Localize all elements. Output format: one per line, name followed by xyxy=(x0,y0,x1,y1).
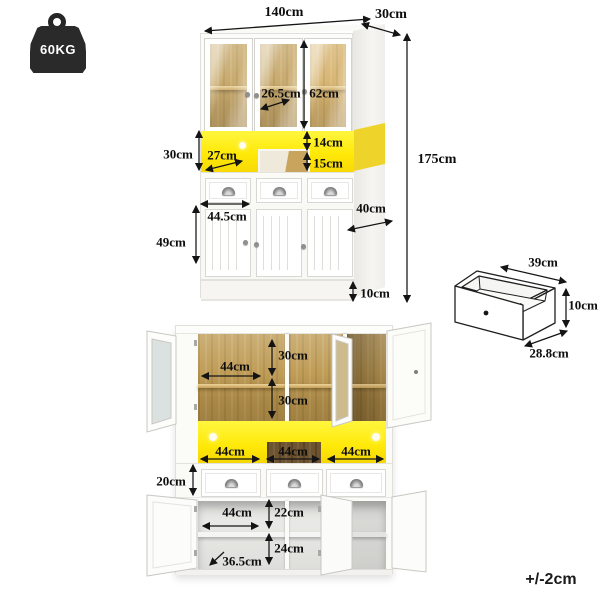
drawer-front xyxy=(326,469,386,497)
dim-glass-inner-depth: 26.5cm xyxy=(261,87,300,100)
door-knob xyxy=(245,92,250,97)
door-knob xyxy=(302,89,307,94)
drawer-front-panel xyxy=(455,286,523,340)
door-knob xyxy=(301,244,306,249)
drawer-side-panel xyxy=(523,288,555,340)
dim-upper-shelf: 30cm xyxy=(278,349,308,362)
door-knob xyxy=(254,242,259,247)
led-puck-light xyxy=(239,142,246,149)
shelf-edge xyxy=(198,384,285,388)
dim-bottom-upper: 22cm xyxy=(274,506,304,519)
drawer-top-rim xyxy=(455,271,555,305)
dim-led-comp-2: 44cm xyxy=(278,445,308,458)
dim-top-depth: 30cm xyxy=(375,8,407,22)
dim-glass-height: 62cm xyxy=(309,87,339,100)
dim-led-comp-3: 44cm xyxy=(341,445,371,458)
dim-bottom-lower: 24cm xyxy=(274,542,304,555)
shell-handle xyxy=(350,479,363,487)
dim-base-depth: 40cm xyxy=(356,202,386,215)
dim-inner-width: 44.5cm xyxy=(207,210,246,223)
beadboard-pattern xyxy=(212,216,244,270)
shell-handle xyxy=(273,187,286,195)
shelf-edge xyxy=(347,384,386,388)
drawer-bottom xyxy=(464,289,545,313)
dim-overall-height: 175cm xyxy=(418,153,457,167)
shell-handle xyxy=(225,479,238,487)
shadow-overlay xyxy=(347,501,386,569)
beadboard-pattern xyxy=(263,216,295,270)
shell-handle xyxy=(288,479,301,487)
dim-drawer-width: 39cm xyxy=(528,256,558,269)
glass-pane xyxy=(210,44,247,127)
kickboard xyxy=(176,569,392,575)
kickboard xyxy=(201,279,354,301)
dim-led-comp-1: 44cm xyxy=(215,445,245,458)
dim-kickboard: 10cm xyxy=(360,287,390,300)
dim-lower-shelf: 30cm xyxy=(278,394,308,407)
drawer-front xyxy=(256,178,302,203)
shelf-edge xyxy=(289,384,343,388)
compartment-left xyxy=(198,334,285,421)
dim-led-width: 27cm xyxy=(207,149,237,162)
drawer-front xyxy=(266,469,323,497)
dim-strip-height: 14cm xyxy=(313,136,343,149)
drawer-row xyxy=(176,463,392,498)
drawer-knob xyxy=(484,311,489,316)
compartment-right xyxy=(347,334,386,421)
drawer-front xyxy=(205,178,251,203)
dim-drawer-height: 10cm xyxy=(568,299,598,312)
dim-drawer-depth: 28.8cm xyxy=(529,347,568,360)
cabinet-dimension-diagram: 60KG xyxy=(0,0,600,600)
door-knob xyxy=(243,240,248,245)
drawer-front xyxy=(307,178,353,203)
tolerance-note: +/-2cm xyxy=(525,571,576,589)
weight-capacity-label: 60KG xyxy=(40,42,76,57)
weight-capacity-badge: 60KG xyxy=(30,13,86,79)
dim-door-height: 49cm xyxy=(156,236,186,249)
panel-door xyxy=(256,209,302,277)
open-niche xyxy=(258,149,310,174)
glass-door-left xyxy=(204,38,253,133)
dim-led-height: 30cm xyxy=(163,148,193,161)
top-rail xyxy=(176,326,392,334)
shadow-overlay xyxy=(347,334,386,421)
drawer-front xyxy=(201,469,261,497)
arrow-drawer-depth xyxy=(525,331,567,346)
drawer-opening xyxy=(462,276,547,303)
dim-top-shelf-width: 44cm xyxy=(220,360,250,373)
shelf-edge xyxy=(210,86,247,90)
cabinet-side-panel xyxy=(353,24,385,298)
door-knob xyxy=(254,93,259,98)
led-puck-light xyxy=(209,433,217,441)
panel-door xyxy=(307,209,353,277)
drawer-detail-view xyxy=(455,271,555,340)
dim-bottom-diagonal: 36.5cm xyxy=(222,555,261,568)
led-puck-light xyxy=(372,433,380,441)
partition xyxy=(343,334,347,421)
dim-bottom-width: 44cm xyxy=(222,506,252,519)
drawer-row xyxy=(201,172,354,205)
dim-drawer-front: 20cm xyxy=(156,475,186,488)
beadboard-pattern xyxy=(314,216,346,270)
dim-niche-height: 15cm xyxy=(313,157,343,170)
kettlebell-icon: 60KG xyxy=(30,26,86,73)
dim-overall-width: 140cm xyxy=(265,6,304,20)
shell-handle xyxy=(324,187,337,195)
shell-handle xyxy=(222,187,235,195)
